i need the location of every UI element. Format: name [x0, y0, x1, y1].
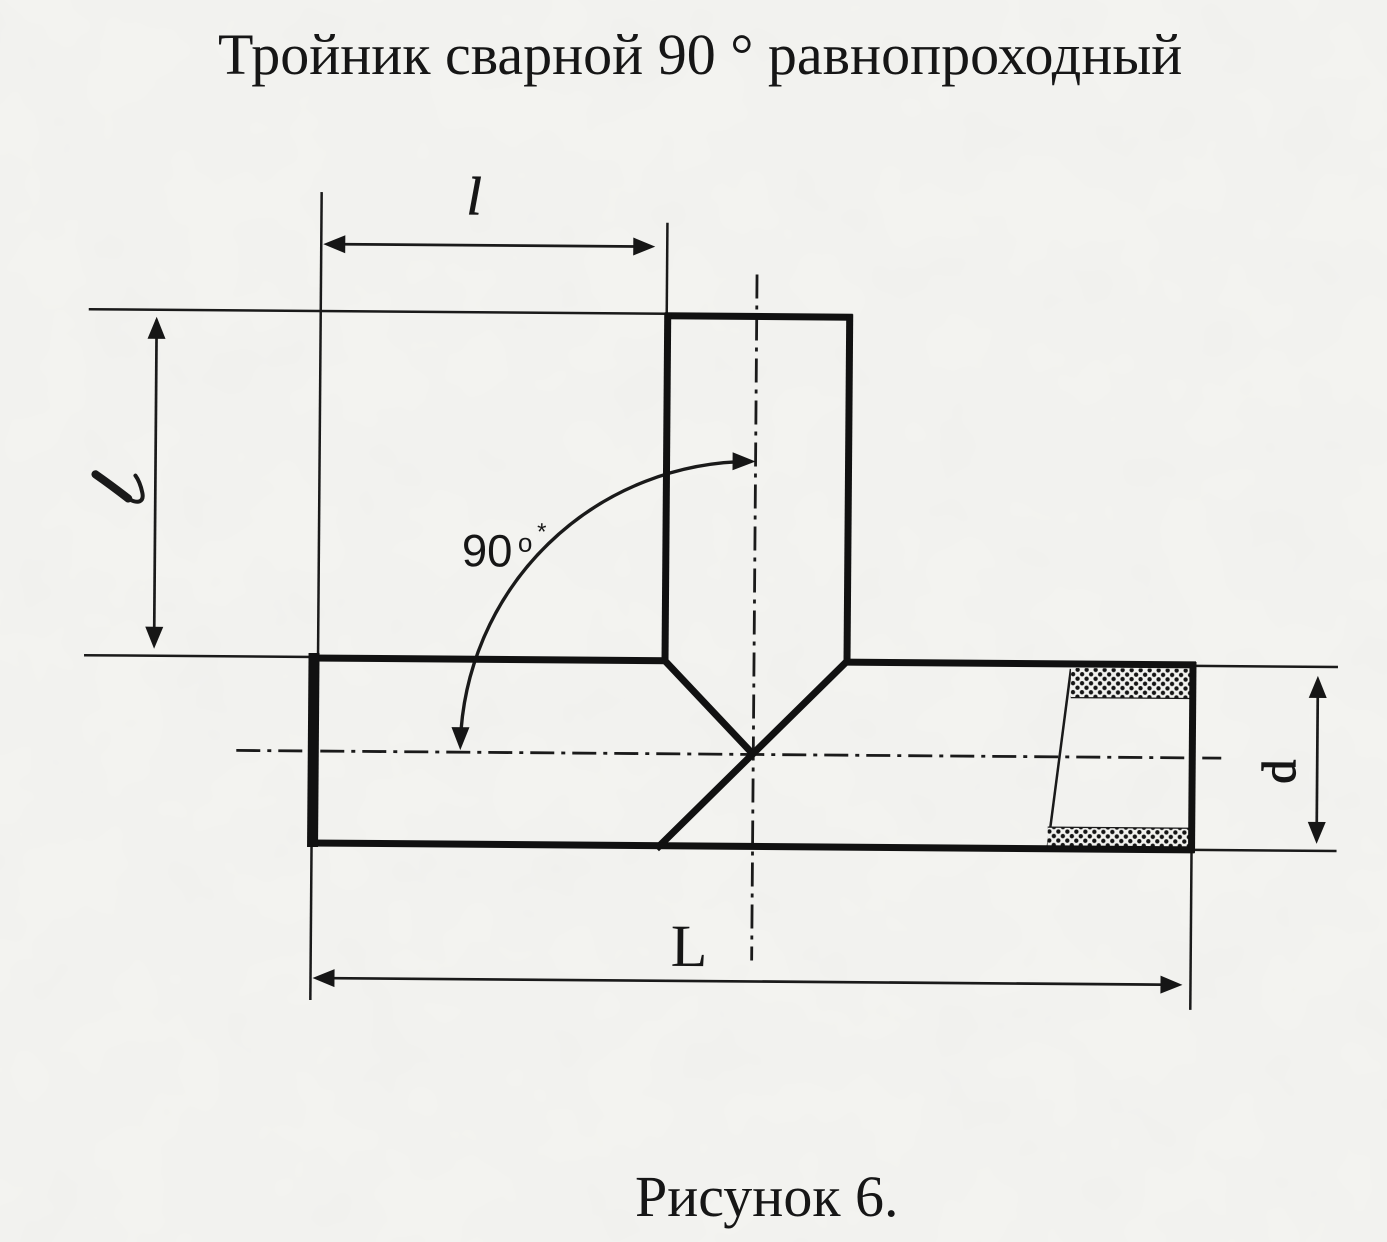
svg-text:Рисунок 6.: Рисунок 6.: [635, 1164, 899, 1229]
svg-text:Тройник сварной 90 ° равнопрох: Тройник сварной 90 ° равнопроходный: [218, 22, 1182, 87]
svg-text:o: o: [518, 528, 533, 558]
svg-text:l: l: [466, 166, 481, 226]
svg-text:d: d: [1253, 759, 1306, 783]
svg-text:*: *: [537, 519, 547, 546]
svg-text:90: 90: [462, 525, 513, 576]
svg-text:L: L: [671, 913, 708, 979]
